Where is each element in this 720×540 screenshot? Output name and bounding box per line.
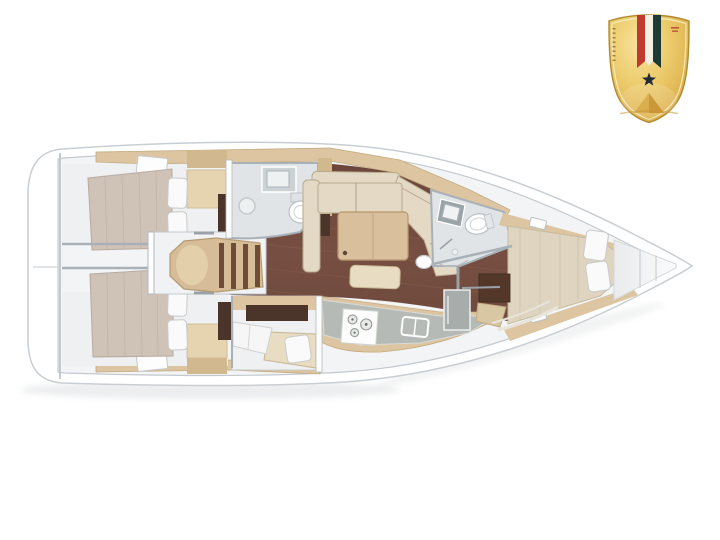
galley-sink <box>401 317 429 338</box>
ribbon-icon <box>637 15 661 68</box>
ribbon-stripe-red <box>637 15 645 68</box>
shower-drain <box>452 249 458 255</box>
locker-wood-a <box>187 150 227 168</box>
companionway-wall <box>148 232 154 294</box>
stove <box>341 309 378 345</box>
companionway-steps <box>148 232 266 294</box>
saloon-bench <box>350 265 401 289</box>
mid-cabin-berth <box>232 296 322 372</box>
pillow <box>585 261 611 293</box>
pouf <box>416 256 432 269</box>
page-canvas <box>0 0 720 540</box>
step-highlight <box>176 245 208 285</box>
cabin-opening-dark <box>246 305 308 321</box>
boat-floor-plan <box>20 142 692 399</box>
ribbon-stripe-green <box>653 15 661 68</box>
table-leg <box>343 251 347 255</box>
head-wall <box>226 160 232 238</box>
pillow <box>583 230 609 262</box>
sink-basin <box>267 171 289 187</box>
pillow <box>284 334 311 363</box>
brand-badge <box>609 15 689 123</box>
locker-wood-a <box>187 358 227 374</box>
ribbon-stripe-white <box>645 15 653 66</box>
pillow <box>167 178 187 209</box>
saloon-table <box>338 212 408 260</box>
pillow <box>167 320 187 351</box>
towel-bar <box>462 287 500 288</box>
sofa-chaise <box>303 180 320 272</box>
cabin-wall <box>316 296 322 372</box>
sofa-seat <box>318 183 402 213</box>
shower-drain <box>239 198 255 214</box>
